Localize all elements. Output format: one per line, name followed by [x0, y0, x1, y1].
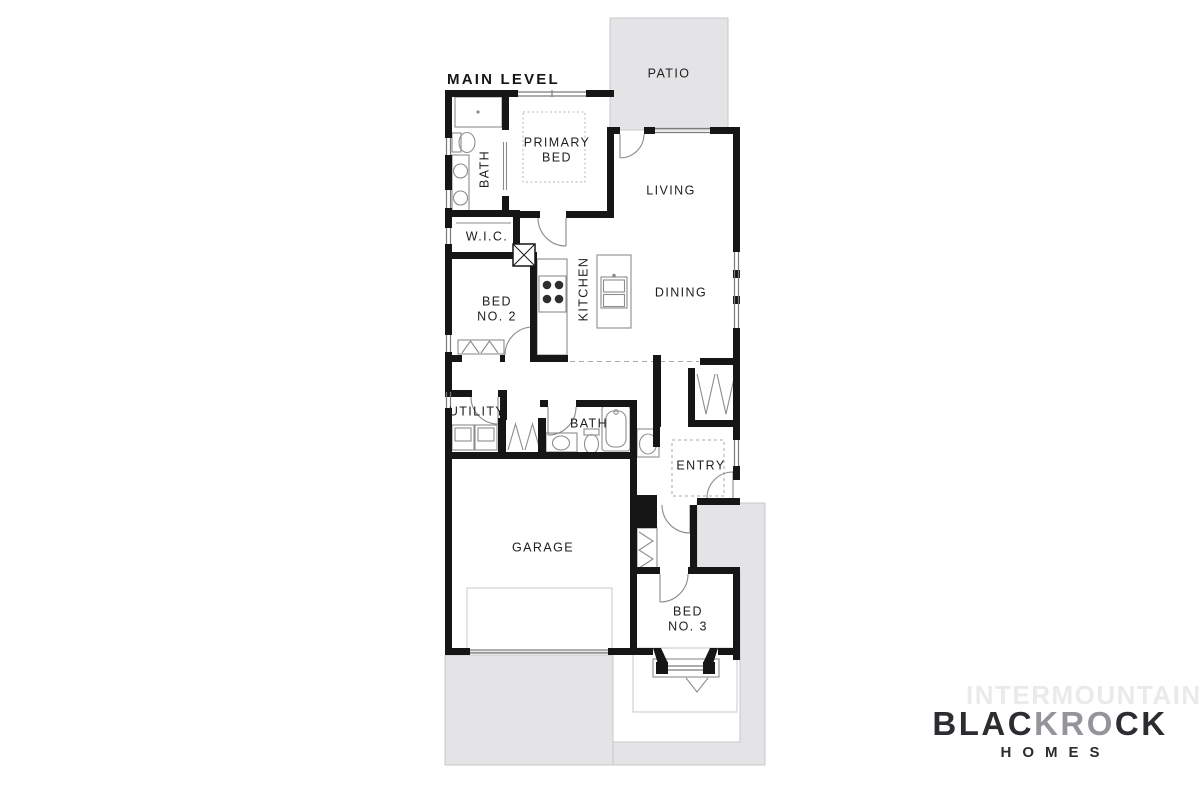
primary-bath-pocket-door: [504, 142, 507, 190]
window-left-3: [447, 228, 451, 244]
bath2-sink: [553, 436, 570, 450]
sink-primary-2: [454, 191, 468, 205]
window-entry: [735, 440, 739, 466]
linen-closet-bifold: [508, 424, 540, 450]
island-faucet: [612, 274, 616, 278]
window-left-1: [447, 138, 451, 155]
kitchen-counter: [537, 259, 567, 355]
room-label-primary-bed: PRIMARY BED: [524, 135, 591, 165]
room-label-dining: DINING: [655, 286, 707, 301]
logo-wordmark: BLACKROCK: [930, 707, 1170, 740]
sink-primary-1: [454, 164, 468, 178]
window-left-2: [447, 190, 451, 208]
bed2-closet-bifold: [462, 341, 498, 353]
window-primary-top: [518, 90, 586, 97]
bed3-landing: [633, 648, 737, 712]
bed3-door: [660, 574, 688, 602]
floor-plan-page: MAIN LEVEL PATIO PRIMARY BED BATH LIVING…: [0, 0, 1200, 800]
bed2-door: [505, 327, 533, 355]
room-label-bed2: BED NO. 2: [477, 294, 517, 324]
room-label-primary-bath: BATH: [478, 150, 493, 188]
garage-apron: [467, 588, 612, 652]
room-label-utility: UTILITY: [449, 405, 505, 420]
driveway-area: [445, 655, 613, 765]
shower-drain: [476, 110, 479, 113]
builder-logo: BLACKROCK HOMES: [930, 707, 1170, 761]
room-label-bath2: BATH: [570, 417, 608, 432]
entry-closet-bifold: [697, 374, 735, 414]
room-label-kitchen: KITCHEN: [577, 257, 592, 322]
toilet-tank-primary: [452, 133, 461, 152]
logo-subtext: HOMES: [930, 744, 1170, 761]
bath2-toilet-bowl: [585, 435, 599, 454]
chase-box: [513, 244, 535, 266]
room-label-living: LIVING: [646, 184, 695, 199]
room-label-patio: PATIO: [648, 67, 691, 82]
front-door: [707, 472, 733, 498]
primary-bed-door: [538, 218, 566, 246]
window-left-4: [447, 335, 451, 352]
room-label-garage: GARAGE: [512, 541, 574, 556]
room-label-entry: ENTRY: [676, 459, 725, 474]
patio-door: [620, 134, 644, 158]
room-label-wic: W.I.C.: [466, 230, 508, 245]
page-title: MAIN LEVEL: [447, 71, 560, 88]
entry-hall-door: [662, 505, 690, 533]
window-dining: [735, 252, 739, 328]
range: [539, 276, 566, 312]
room-label-bed3: BED NO. 3: [668, 604, 708, 634]
